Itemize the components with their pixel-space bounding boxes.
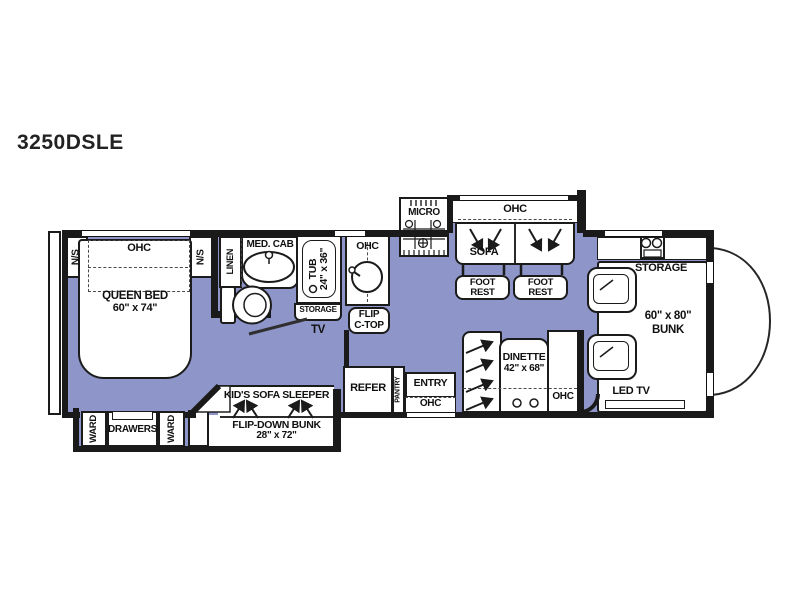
queen-bed-size: 60" x 74" bbox=[78, 303, 192, 315]
ward-left-label: WARD bbox=[81, 411, 107, 447]
window-front-upper bbox=[706, 262, 714, 283]
ward-right-label: WARD bbox=[158, 411, 185, 447]
kids-sofa-fold-line bbox=[220, 416, 333, 418]
kids-slide-right-wall bbox=[333, 389, 341, 452]
wall-bottom-b bbox=[184, 412, 196, 418]
kids-bunk-size: 28" x 72" bbox=[220, 431, 333, 442]
kids-sleeper-label: KID'S SOFA SLEEPER bbox=[220, 390, 333, 401]
kitchen-ohc-label: OHC bbox=[345, 241, 390, 252]
cab-seat-top-cushion bbox=[593, 274, 629, 304]
floorplan-canvas: 3250DSLE bbox=[0, 0, 800, 600]
bunk-label: BUNK bbox=[628, 324, 708, 336]
dinette-dashed-line bbox=[463, 388, 577, 389]
sofa-ohc-label: OHC bbox=[452, 204, 578, 216]
bedroom-ohc-label: OHC bbox=[100, 243, 178, 255]
refer-label: REFER bbox=[343, 383, 393, 395]
cab-front-outline bbox=[712, 248, 770, 395]
entry-door bbox=[407, 412, 455, 418]
bunk-size-label: 60" x 80" bbox=[628, 310, 708, 322]
dinette-label: DINETTE bbox=[497, 352, 551, 363]
slide-bottom-wall bbox=[73, 446, 341, 452]
ns-right-label: N/S bbox=[189, 236, 214, 278]
pantry-label: PANTRY bbox=[392, 366, 405, 414]
sofa-divider bbox=[514, 224, 516, 263]
footrest-right-label: FOOTREST bbox=[513, 278, 568, 299]
drawers-label: DRAWERS bbox=[107, 425, 158, 436]
rear-wall-cap bbox=[48, 231, 61, 415]
dinette-ohc-label: OHC bbox=[547, 392, 579, 403]
window-front bbox=[605, 230, 662, 237]
window-sofa-slide bbox=[460, 195, 568, 201]
dinette-table bbox=[499, 338, 549, 413]
queen-bed-label: QUEEN BED bbox=[78, 290, 192, 302]
entry-ohc-label: OHC bbox=[405, 399, 456, 410]
front-storage-label: STORAGE bbox=[630, 263, 692, 275]
ns-left-label: N/S bbox=[66, 236, 88, 278]
window-bedroom bbox=[82, 230, 190, 237]
tub-label: TUB24" x 36" bbox=[296, 236, 342, 302]
sofa-slide-right-wall bbox=[577, 190, 586, 233]
footrest-left-label: FOOTREST bbox=[455, 278, 510, 299]
bath-storage-label: STORAGE bbox=[294, 306, 342, 315]
wall-bath-bottom bbox=[211, 311, 271, 318]
wall-kitchen-stub bbox=[344, 330, 349, 368]
led-tv-label: LED TV bbox=[600, 386, 662, 398]
tv-label: TV bbox=[306, 324, 330, 336]
model-title: 3250DSLE bbox=[17, 131, 124, 155]
flip-ctop-label: FLIPC-TOP bbox=[348, 310, 390, 332]
sofa-label: SOFA bbox=[458, 247, 510, 259]
cab-seat-bottom-cushion bbox=[593, 341, 629, 371]
bedroom-ohc-depth-line bbox=[88, 267, 188, 268]
med-cab-label: MED. CAB bbox=[241, 240, 299, 251]
linen-label: LINEN bbox=[219, 236, 242, 288]
sofa-ohc-dashed bbox=[458, 219, 572, 220]
led-tv-unit bbox=[605, 400, 685, 409]
galley-sink-box bbox=[640, 236, 665, 259]
entry-label: ENTRY bbox=[405, 378, 456, 389]
drawer-front bbox=[112, 411, 153, 420]
micro-label: MICRO bbox=[399, 208, 449, 219]
dinette-size: 42" x 68" bbox=[495, 364, 553, 375]
window-front-lower bbox=[706, 373, 714, 396]
micro-stove-unit bbox=[399, 197, 449, 257]
